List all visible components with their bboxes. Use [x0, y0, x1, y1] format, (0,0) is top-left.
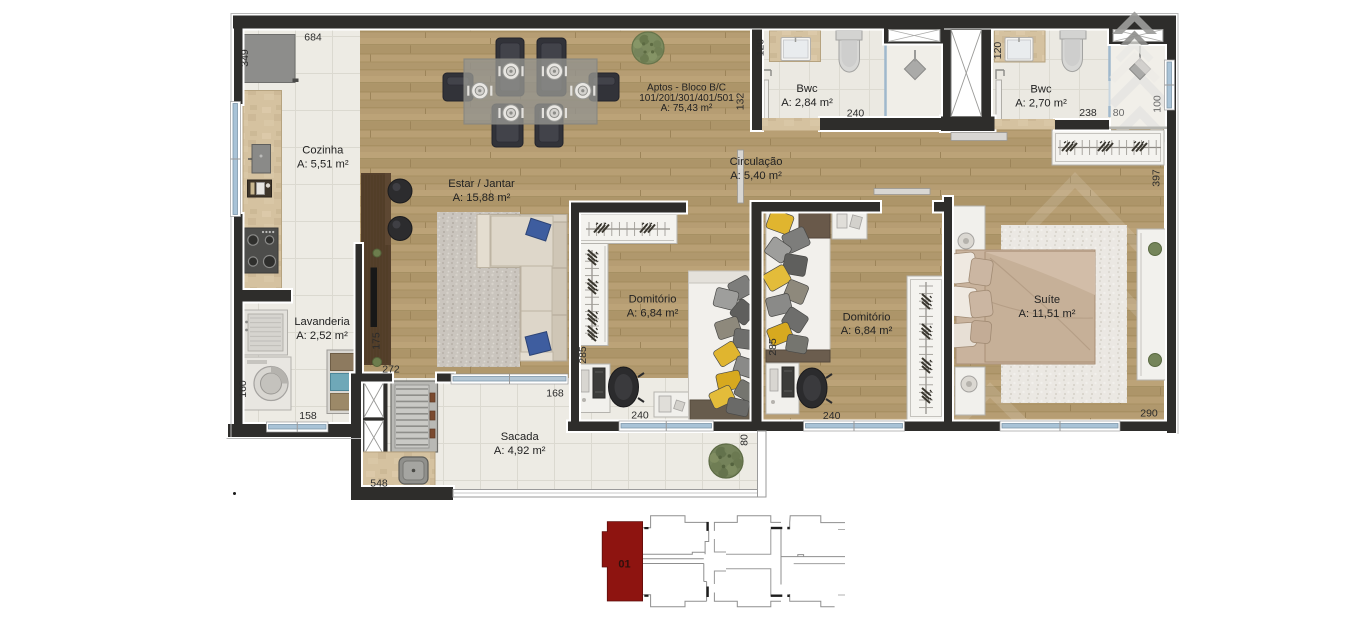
svg-text:Lavanderia: Lavanderia	[294, 316, 350, 328]
svg-text:285: 285	[767, 338, 779, 356]
svg-text:548: 548	[370, 478, 388, 490]
svg-text:80: 80	[739, 434, 751, 446]
svg-text:Suíte: Suíte	[1034, 294, 1060, 306]
svg-text:A: 11,51 m²: A: 11,51 m²	[1019, 308, 1076, 320]
svg-text:Bwc: Bwc	[1030, 84, 1052, 96]
svg-text:120: 120	[992, 42, 1004, 60]
svg-text:240: 240	[631, 410, 649, 422]
svg-text:120: 120	[755, 39, 767, 57]
svg-text:80: 80	[1113, 107, 1125, 119]
svg-text:290: 290	[1140, 408, 1158, 420]
svg-text:349: 349	[239, 49, 251, 67]
svg-text:A: 4,92 m²: A: 4,92 m²	[494, 445, 546, 457]
svg-text:285: 285	[577, 346, 589, 364]
svg-text:240: 240	[847, 108, 865, 120]
svg-text:A: 15,88 m²: A: 15,88 m²	[453, 192, 511, 204]
svg-text:Bwc: Bwc	[796, 83, 818, 95]
svg-text:A: 2,70 m²: A: 2,70 m²	[1015, 97, 1067, 109]
svg-text:238: 238	[1079, 107, 1097, 119]
svg-text:132: 132	[735, 93, 747, 111]
svg-text:Sacada: Sacada	[501, 431, 540, 443]
svg-text:A: 5,40 m²: A: 5,40 m²	[730, 170, 782, 182]
svg-text:158: 158	[299, 410, 317, 422]
svg-text:168: 168	[546, 388, 564, 400]
svg-text:A: 2,52 m²: A: 2,52 m²	[296, 330, 348, 342]
svg-text:Cozinha: Cozinha	[302, 145, 344, 157]
svg-text:A: 6,84 m²: A: 6,84 m²	[627, 307, 679, 319]
svg-text:160: 160	[237, 380, 249, 398]
svg-text:Domitório: Domitório	[629, 294, 677, 306]
svg-text:175: 175	[371, 332, 383, 350]
svg-text:Estar / Jantar: Estar / Jantar	[448, 178, 515, 190]
svg-text:684: 684	[304, 32, 322, 44]
svg-text:Domitório: Domitório	[843, 311, 891, 323]
svg-text:A: 5,51 m²: A: 5,51 m²	[297, 158, 349, 170]
svg-text:100: 100	[1152, 95, 1164, 113]
svg-text:397: 397	[1151, 169, 1163, 187]
svg-text:A: 6,84 m²: A: 6,84 m²	[841, 325, 893, 337]
svg-text:272: 272	[382, 364, 400, 376]
svg-text:240: 240	[823, 410, 841, 422]
svg-text:01: 01	[618, 559, 630, 571]
svg-text:Circulação: Circulação	[730, 156, 783, 168]
svg-text:A: 2,84 m²: A: 2,84 m²	[781, 97, 833, 109]
svg-text:A: 75,43 m²: A: 75,43 m²	[661, 103, 713, 114]
